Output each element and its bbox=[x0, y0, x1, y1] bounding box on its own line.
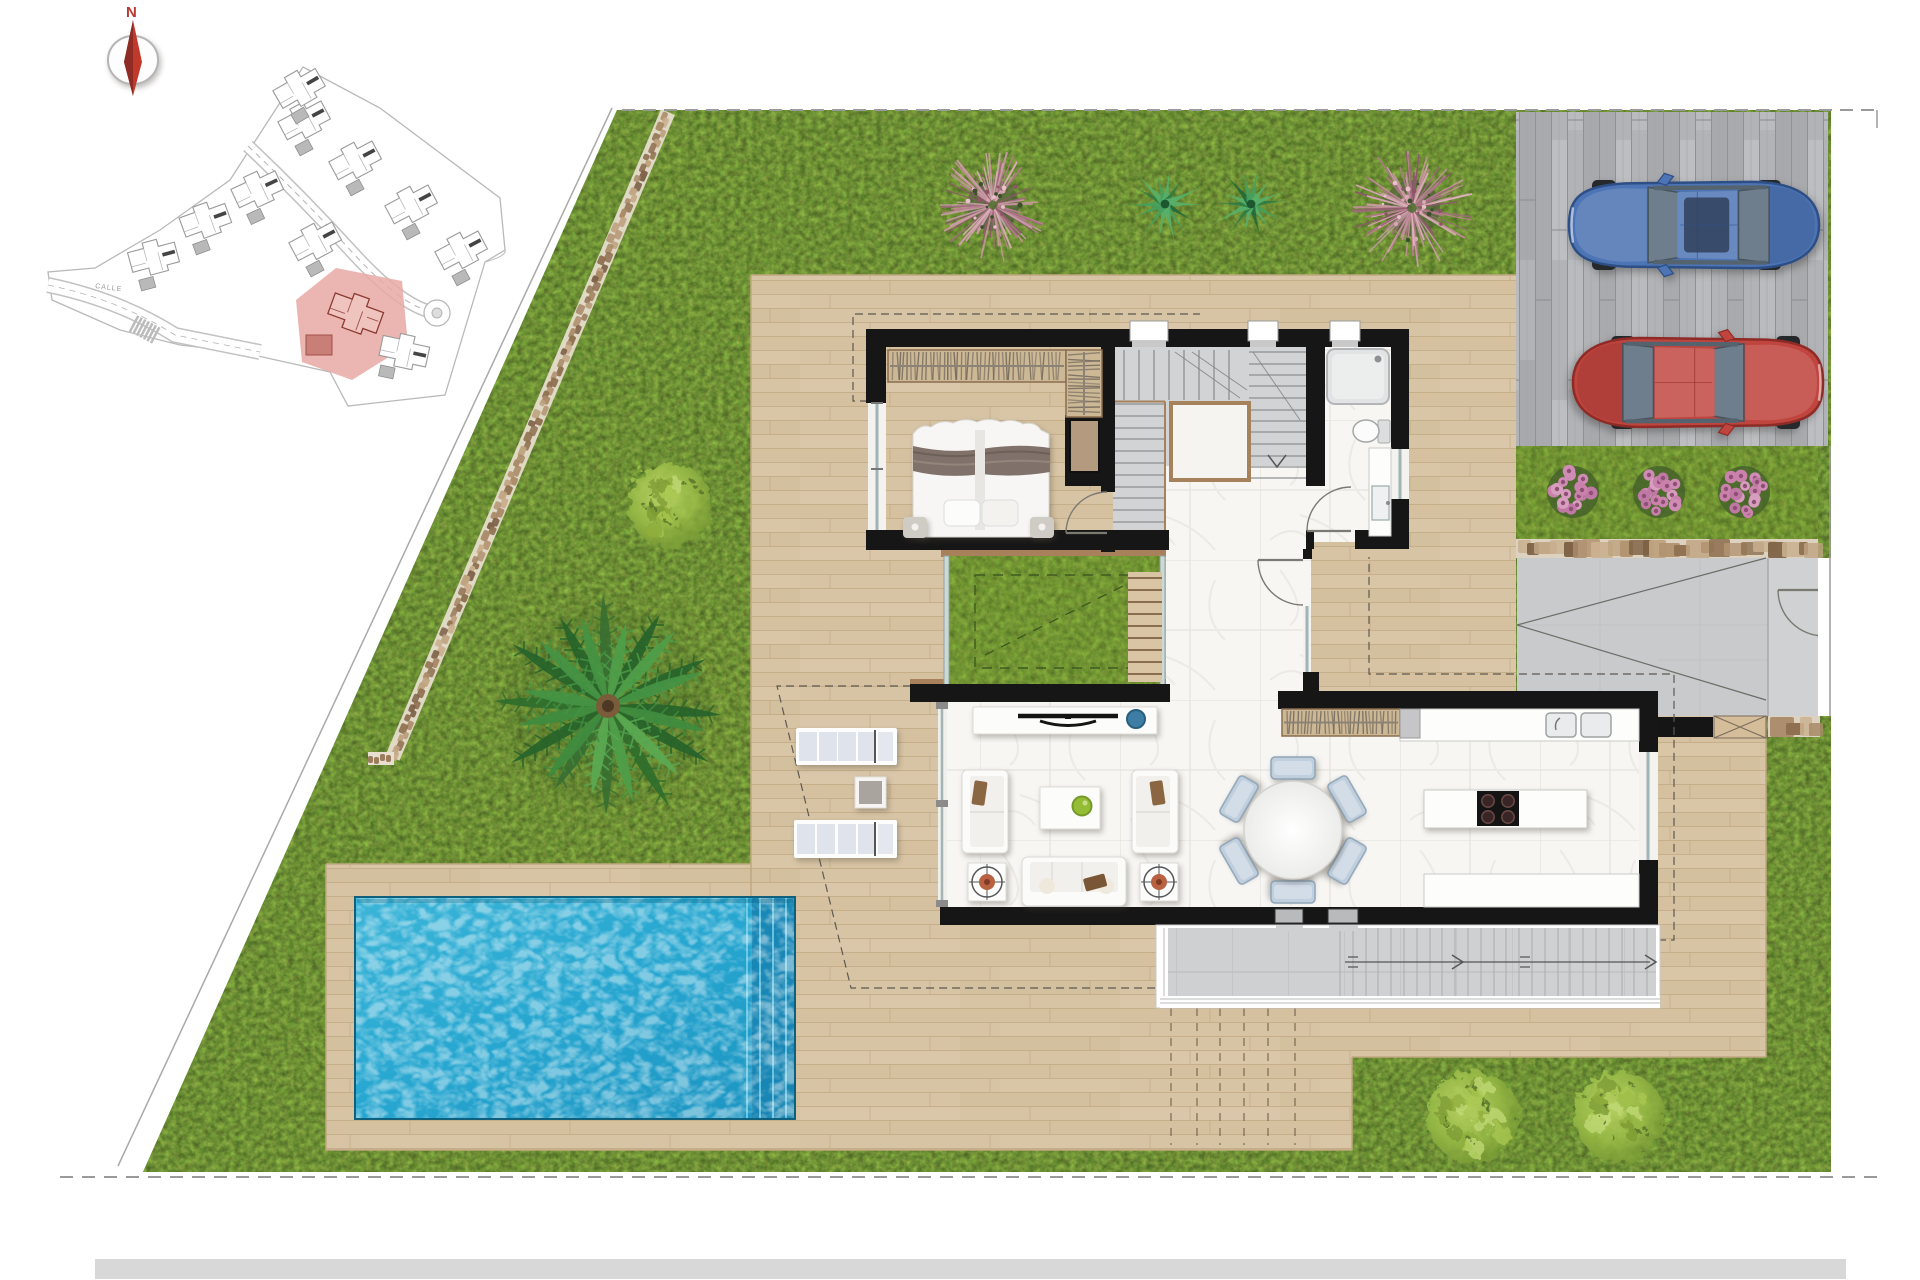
svg-text:N: N bbox=[126, 4, 137, 21]
